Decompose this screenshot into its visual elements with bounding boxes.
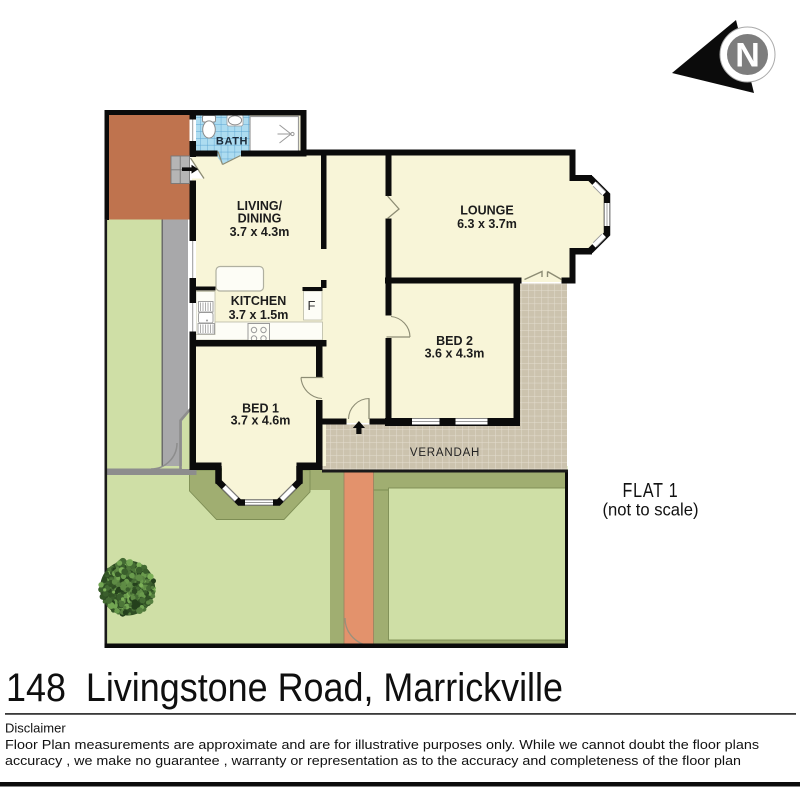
svg-text:BATH: BATH [216, 136, 248, 148]
svg-text:N: N [735, 37, 760, 75]
svg-text:(not to scale): (not to scale) [603, 500, 699, 520]
svg-text:3.7 x 4.3m: 3.7 x 4.3m [230, 225, 290, 239]
svg-text:LOUNGE: LOUNGE [460, 204, 513, 218]
svg-text:3.7 x 4.6m: 3.7 x 4.6m [231, 414, 291, 428]
svg-text:6.3 x 3.7m: 6.3 x 3.7m [457, 217, 517, 231]
svg-text:3.6 x 4.3m: 3.6 x 4.3m [425, 347, 485, 361]
svg-text:VERANDAH: VERANDAH [410, 447, 480, 459]
svg-text:Disclaimer: Disclaimer [5, 721, 66, 736]
svg-text:KITCHEN: KITCHEN [231, 294, 287, 308]
svg-text:3.7 x 1.5m: 3.7 x 1.5m [229, 308, 289, 322]
svg-text:DINING: DINING [238, 212, 282, 226]
svg-text:148 Livingstone Road, Marrick: 148 Livingstone Road, Marrickville [6, 666, 563, 710]
svg-text:F: F [308, 298, 316, 313]
svg-text:Floor Plan measurements are ap: Floor Plan measurements are approximate … [5, 737, 760, 752]
svg-text:accuracy , we make no guarante: accuracy , we make no guarantee , warran… [5, 753, 741, 768]
